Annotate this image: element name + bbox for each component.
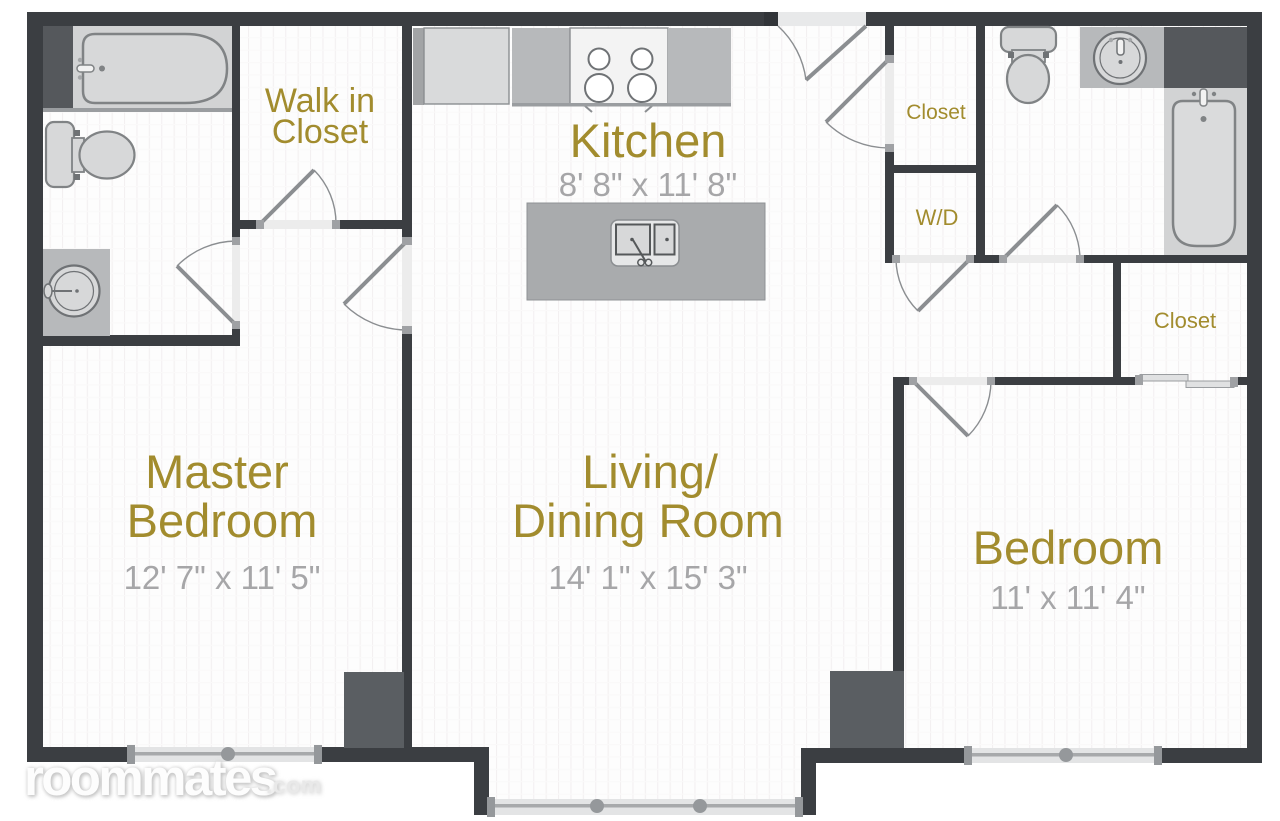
svg-text:12' 7" x 11' 5": 12' 7" x 11' 5" <box>124 559 321 596</box>
svg-text:.com: .com <box>266 772 322 798</box>
svg-text:Dining Room: Dining Room <box>512 494 784 547</box>
svg-text:Master: Master <box>145 445 289 498</box>
svg-text:14' 1" x 15' 3": 14' 1" x 15' 3" <box>548 559 747 596</box>
svg-text:Bedroom: Bedroom <box>973 521 1164 574</box>
svg-text:Bedroom: Bedroom <box>127 494 318 547</box>
svg-text:8' 8" x 11' 8": 8' 8" x 11' 8" <box>559 166 738 203</box>
svg-text:W/D: W/D <box>916 205 959 230</box>
svg-text:Closet: Closet <box>1154 308 1216 333</box>
svg-text:Kitchen: Kitchen <box>570 114 727 167</box>
svg-text:roommates: roommates <box>24 749 277 806</box>
svg-text:11' x 11' 4": 11' x 11' 4" <box>990 579 1145 616</box>
svg-text:Closet: Closet <box>272 113 369 151</box>
svg-text:Living/: Living/ <box>582 445 719 498</box>
svg-text:Closet: Closet <box>906 101 966 124</box>
